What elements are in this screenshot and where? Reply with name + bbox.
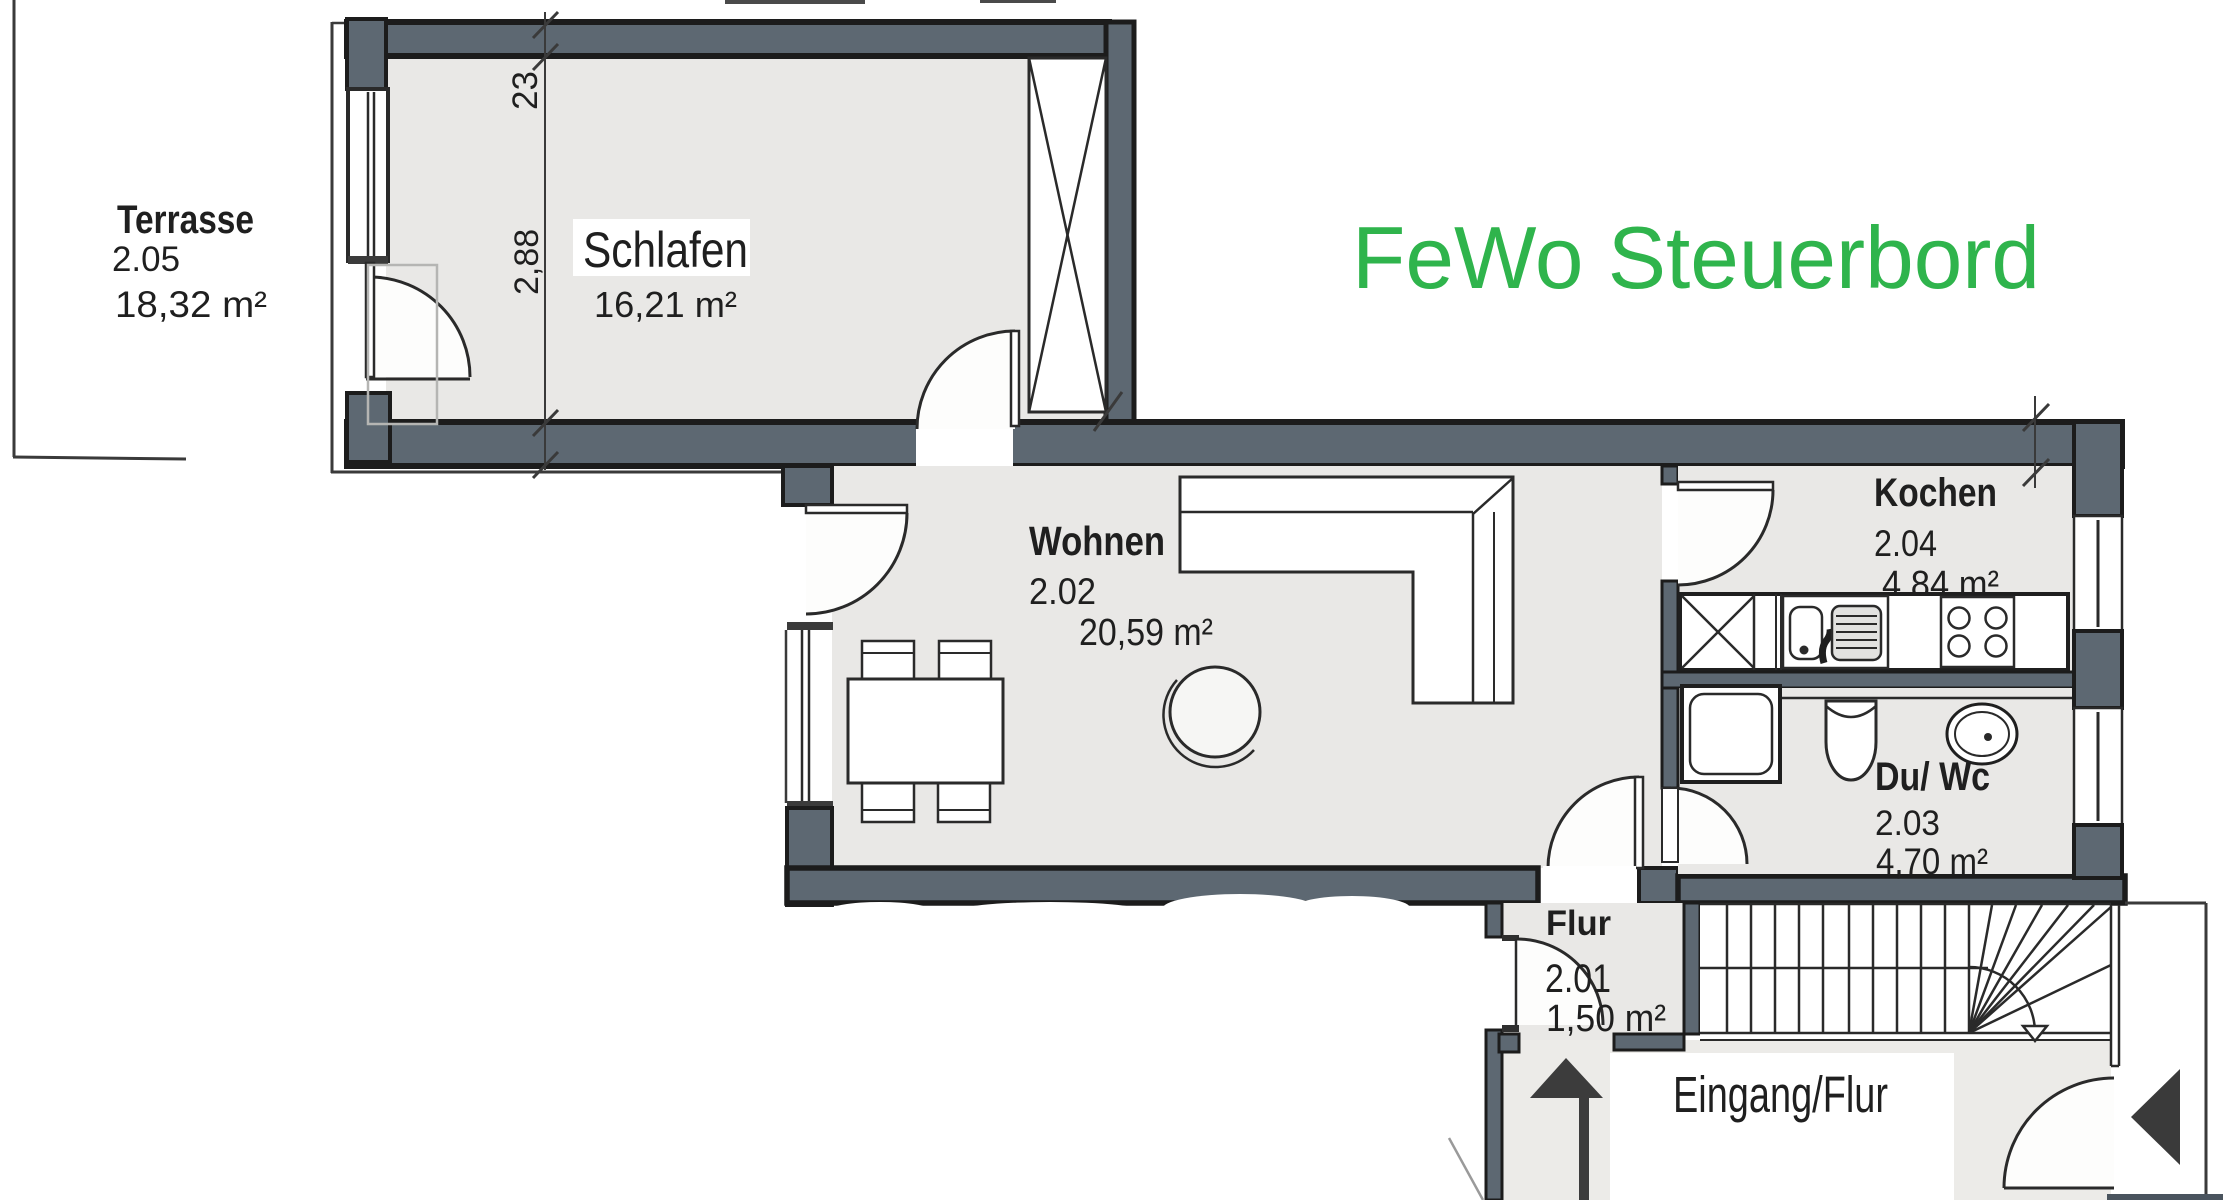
svg-text:Kochen: Kochen xyxy=(1874,471,1997,515)
svg-text:20,59 m²: 20,59 m² xyxy=(1079,612,1213,654)
svg-text:Wohnen: Wohnen xyxy=(1029,518,1165,564)
svg-text:1,50 m²: 1,50 m² xyxy=(1546,998,1666,1040)
svg-text:FeWo Steuerbord: FeWo Steuerbord xyxy=(1352,208,2040,307)
svg-text:23: 23 xyxy=(506,71,545,110)
svg-text:2.03: 2.03 xyxy=(1875,804,1940,843)
svg-text:Schlafen: Schlafen xyxy=(583,222,748,278)
svg-text:2.01: 2.01 xyxy=(1545,957,1611,1001)
svg-text:2,88: 2,88 xyxy=(508,229,546,295)
svg-text:2.05: 2.05 xyxy=(112,240,180,279)
svg-text:Terrasse: Terrasse xyxy=(117,198,254,242)
svg-text:2.04: 2.04 xyxy=(1874,523,1937,564)
svg-text:18,32 m²: 18,32 m² xyxy=(115,284,267,325)
svg-text:Flur: Flur xyxy=(1546,904,1611,943)
svg-text:4,70 m²: 4,70 m² xyxy=(1876,841,1988,882)
svg-text:16,21 m²: 16,21 m² xyxy=(594,284,737,325)
svg-text:Du/ Wc: Du/ Wc xyxy=(1875,755,1990,799)
svg-text:2.02: 2.02 xyxy=(1029,571,1096,612)
svg-text:Eingang/Flur: Eingang/Flur xyxy=(1673,1066,1888,1123)
